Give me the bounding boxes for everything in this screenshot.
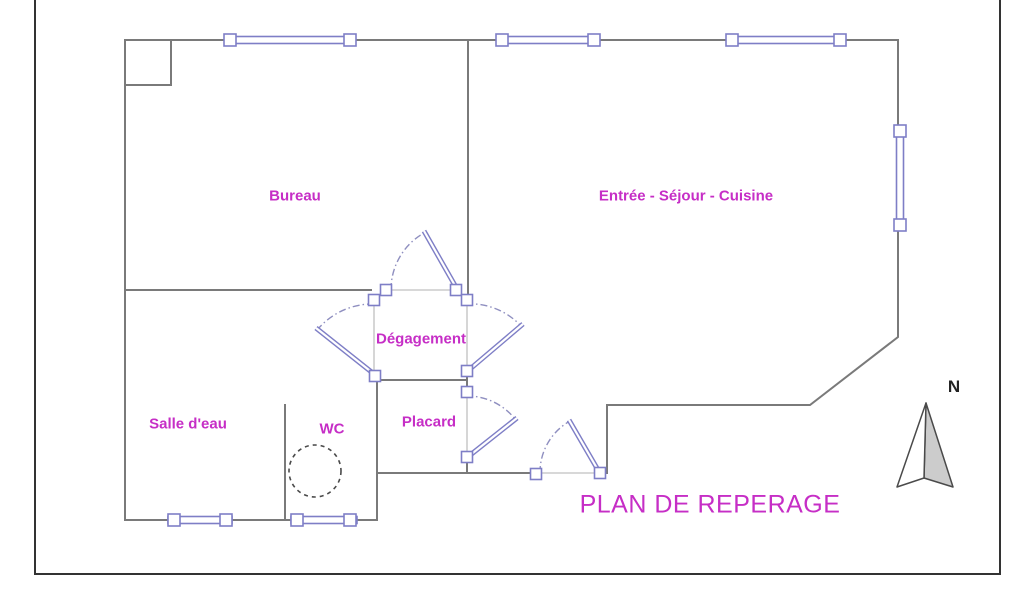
jamb-square (894, 125, 906, 137)
wall-outline-left (125, 40, 377, 520)
room-label-placard: Placard (402, 414, 456, 431)
jamb-square (894, 219, 906, 231)
door-swing-arc (318, 304, 374, 329)
door-swing-arc (466, 304, 521, 326)
jamb-square (381, 285, 392, 296)
room-label-degagement: Dégagement (376, 331, 466, 348)
room-label-entree-sejour-cuisine: Entrée - Séjour - Cuisine (599, 188, 773, 205)
jamb-square (369, 295, 380, 306)
room-label-wc: WC (320, 421, 345, 438)
jamb-square (588, 34, 600, 46)
jamb-square (220, 514, 232, 526)
room-label-bureau: Bureau (269, 188, 321, 205)
north-arrow-icon (897, 403, 953, 487)
door-swing-arc (540, 421, 570, 473)
door-swing-arc (466, 396, 515, 419)
jamb-square (531, 469, 542, 480)
jamb-square (344, 34, 356, 46)
windows (168, 37, 904, 524)
jamb-square (726, 34, 738, 46)
door-swing-arc (391, 233, 424, 290)
jamb-square (462, 387, 473, 398)
jamb-square (462, 452, 473, 463)
door-leaves (316, 231, 598, 470)
jamb-square (291, 514, 303, 526)
walls (125, 40, 898, 520)
wc-fixture-circle (289, 445, 341, 497)
jamb-square (462, 366, 473, 377)
window (502, 37, 594, 44)
jamb-square (496, 34, 508, 46)
wall-outline-right (125, 40, 898, 473)
jamb-square (595, 468, 606, 479)
jamb-square (451, 285, 462, 296)
jamb-square (834, 34, 846, 46)
window (897, 131, 904, 225)
door-window-jambs (168, 34, 906, 526)
floor-plan-geometry (0, 0, 1025, 613)
jamb-square (224, 34, 236, 46)
window (230, 37, 350, 44)
jamb-square (168, 514, 180, 526)
floor-plan-drawing: Bureau Entrée - Séjour - Cuisine Dégagem… (0, 0, 1025, 613)
room-label-salle-deau: Salle d'eau (149, 416, 227, 433)
north-arrow-label: N (948, 377, 960, 397)
jamb-square (344, 514, 356, 526)
window (732, 37, 840, 44)
drawing-frame (35, 0, 1000, 574)
jamb-square (370, 371, 381, 382)
wall-corner-duct (125, 40, 171, 85)
page-title: PLAN DE REPERAGE (580, 491, 841, 520)
jamb-square (462, 295, 473, 306)
